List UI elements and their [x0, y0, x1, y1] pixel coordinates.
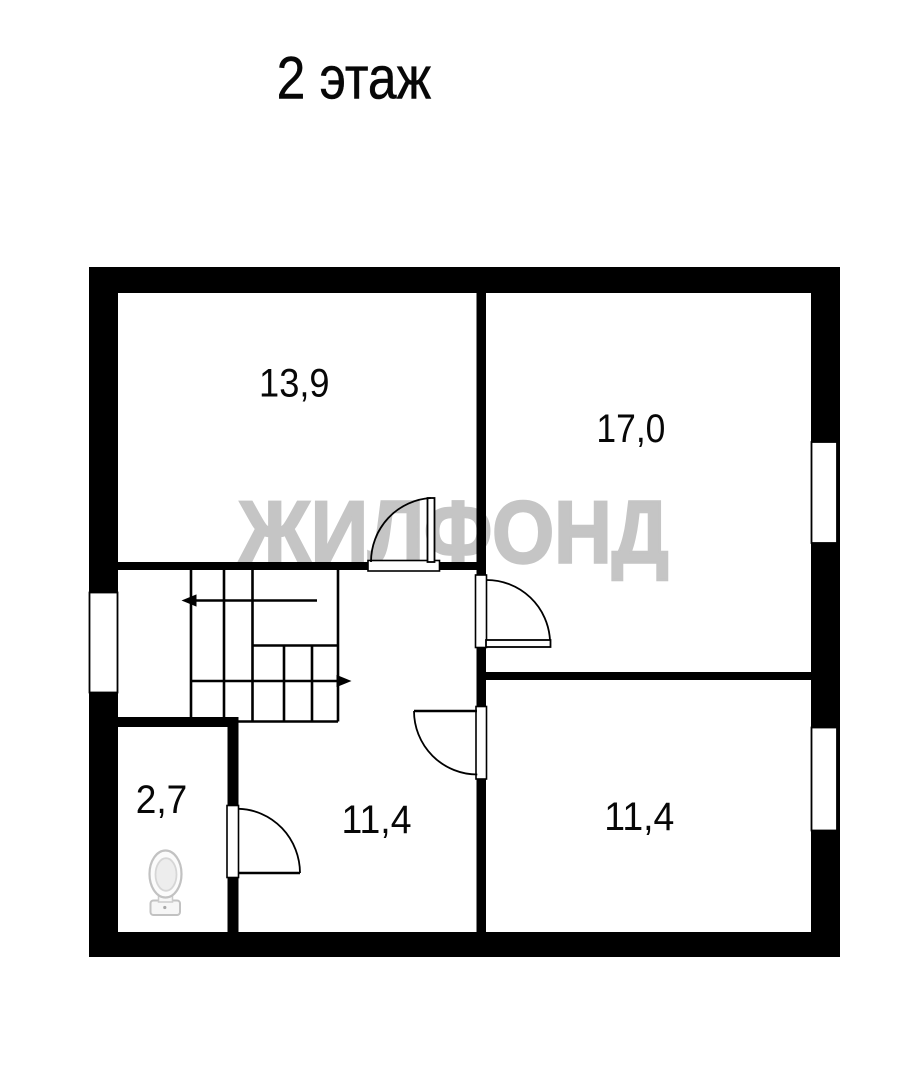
- svg-text:13,9: 13,9: [259, 361, 330, 405]
- svg-text:2 этаж: 2 этаж: [277, 44, 432, 111]
- svg-text:11,4: 11,4: [604, 795, 674, 839]
- svg-text:17,0: 17,0: [596, 407, 665, 451]
- svg-text:11,4: 11,4: [342, 798, 412, 842]
- svg-text:2,7: 2,7: [136, 778, 188, 822]
